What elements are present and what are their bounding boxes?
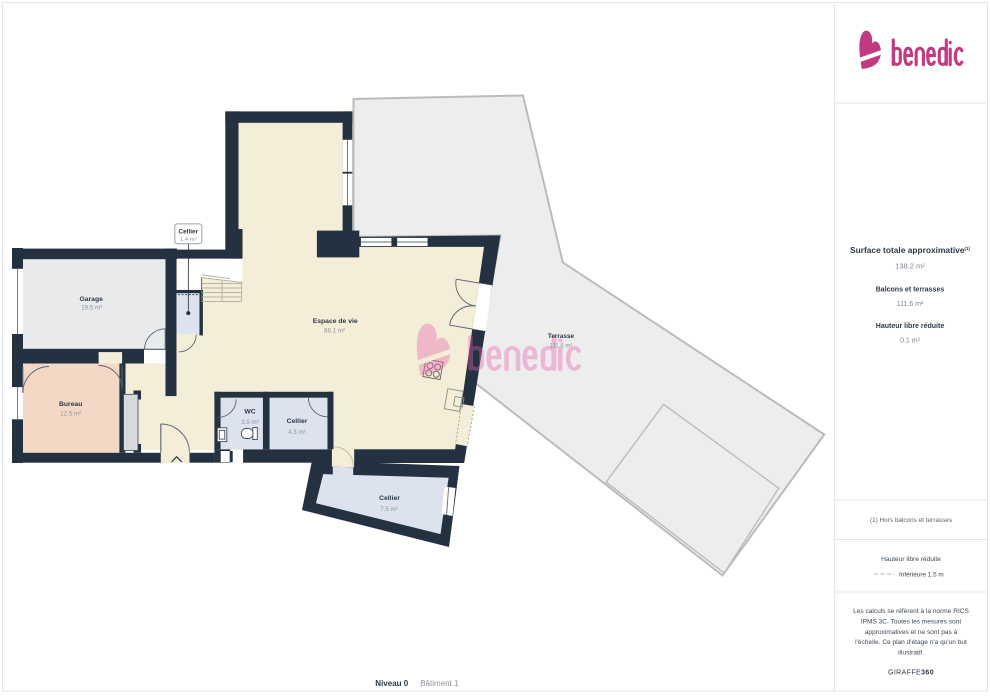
svg-text:Niveau 0: Niveau 0 — [375, 679, 408, 688]
svg-text:illustratif.: illustratif. — [898, 650, 924, 657]
svg-text:Surface totale approximative(1: Surface totale approximative(1) — [850, 245, 971, 255]
svg-text:l'échelle. Ce plan d'étage n'a: l'échelle. Ce plan d'étage n'a qu'un but — [855, 639, 967, 646]
svg-text:4.3 m²: 4.3 m² — [288, 429, 306, 436]
svg-text:Espace de vie: Espace de vie — [313, 318, 358, 325]
svg-text:Les calculs se réfèrent à la n: Les calculs se réfèrent à la norme RICS — [853, 608, 969, 615]
svg-text:Hauteur libre réduite: Hauteur libre réduite — [876, 323, 945, 330]
svg-text:19.5 m²: 19.5 m² — [81, 305, 102, 312]
svg-text:(1) Hors balcons et terrasses: (1) Hors balcons et terrasses — [870, 517, 952, 524]
svg-text:3.5 m²: 3.5 m² — [241, 419, 259, 426]
svg-text:88.1 m²: 88.1 m² — [324, 328, 345, 335]
svg-text:0.1 m²: 0.1 m² — [900, 338, 921, 345]
svg-text:1.4 m²: 1.4 m² — [180, 237, 196, 243]
svg-text:138.2 m²: 138.2 m² — [895, 262, 925, 271]
svg-text:Balcons et terrasses: Balcons et terrasses — [876, 286, 945, 293]
svg-text:Hauteur libre réduite: Hauteur libre réduite — [881, 556, 941, 563]
svg-text:WC: WC — [244, 408, 255, 415]
svg-text:approximatives et ne sont pas: approximatives et ne sont pas à — [865, 629, 958, 636]
svg-text:Cellier: Cellier — [179, 229, 199, 236]
svg-text:Bureau: Bureau — [59, 401, 82, 408]
svg-text:7.5 m²: 7.5 m² — [380, 506, 398, 513]
svg-text:Garage: Garage — [79, 296, 103, 303]
svg-text:Cellier: Cellier — [379, 495, 400, 502]
svg-text:111.6 m²: 111.6 m² — [897, 301, 924, 308]
svg-text:Inférieure 1.5 m: Inférieure 1.5 m — [899, 572, 944, 579]
svg-text:Bâtiment 1: Bâtiment 1 — [420, 679, 459, 688]
svg-text:111.6 m²: 111.6 m² — [550, 344, 573, 350]
svg-text:GIRAFFE360: GIRAFFE360 — [888, 670, 934, 677]
svg-text:IPMS 3C. Toutes les mesures so: IPMS 3C. Toutes les mesures sont — [861, 618, 961, 625]
svg-text:Cellier: Cellier — [287, 418, 308, 425]
svg-text:12.5 m²: 12.5 m² — [60, 411, 81, 418]
svg-text:Terrasse: Terrasse — [548, 333, 575, 340]
